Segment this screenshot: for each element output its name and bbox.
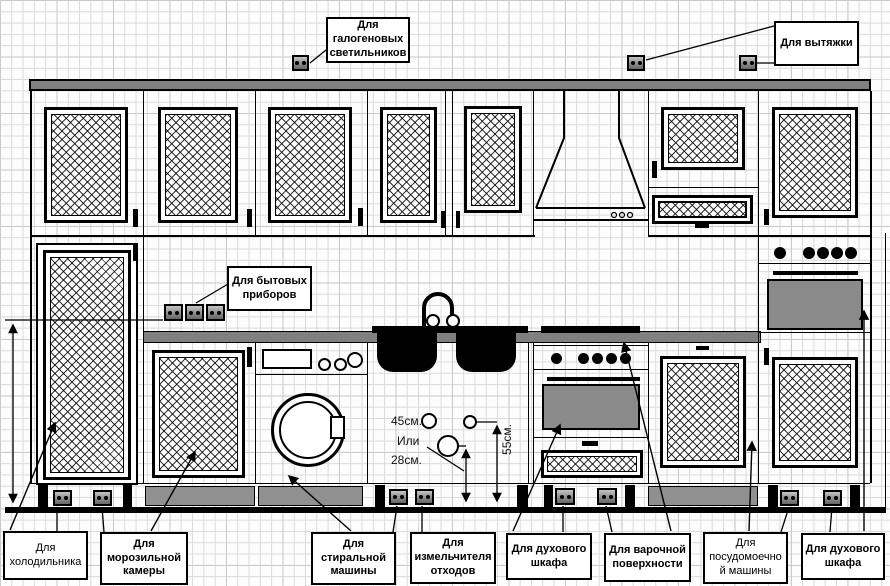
- callout-washing-machine: Для стиральной машины: [311, 532, 396, 585]
- oven-right-outlet-connector: [830, 507, 832, 532]
- hob-leader-arrow: [624, 343, 671, 531]
- diagram-lines-overlay: [0, 0, 890, 586]
- dimension-lines: [5, 320, 497, 502]
- callout-oven-left: Для духового шкафа: [506, 533, 592, 580]
- callout-fridge: Для холодильника: [3, 531, 88, 580]
- dishwasher-leader-arrow: [749, 442, 752, 531]
- outlet-circle-28: [438, 436, 458, 456]
- freezer-outlet-connector: [102, 507, 104, 532]
- dishwasher-outlet-connector: [781, 507, 789, 532]
- appliance-connector: [196, 284, 228, 303]
- fridge-leader-arrow: [10, 423, 55, 530]
- hob-outlet-connector: [606, 506, 612, 532]
- callout-waste-grinder: Для измельчителя отходов: [410, 532, 496, 584]
- range-hood-icon: [533, 91, 648, 220]
- outlet-circle-55: [464, 416, 476, 428]
- freezer-leader-arrow: [151, 452, 195, 531]
- callout-halogen-lights: Для галогеновых светильников: [326, 17, 410, 63]
- callout-dishwasher: Для посудомоечно й машины: [703, 532, 788, 584]
- kitchen-wiring-diagram: Для галогеновых светильников Для вытяжки…: [0, 0, 890, 586]
- callout-household-appliances: Для бытовых приборов: [227, 266, 312, 311]
- callout-freezer: Для морозильной камеры: [100, 532, 188, 585]
- outlet-circle-45: [422, 414, 436, 428]
- faucet-icon: [424, 294, 459, 330]
- hood-connector-long: [646, 26, 774, 60]
- callout-hood: Для вытяжки: [774, 21, 859, 66]
- halogen-connector: [310, 50, 326, 63]
- washer-outlet-connector: [393, 506, 397, 532]
- callout-hob: Для варочной поверхности: [604, 533, 691, 582]
- callout-oven-right: Для духового шкафа: [801, 533, 885, 580]
- washer-leader-arrow: [289, 476, 351, 531]
- oven-left-leader-arrow: [513, 425, 560, 531]
